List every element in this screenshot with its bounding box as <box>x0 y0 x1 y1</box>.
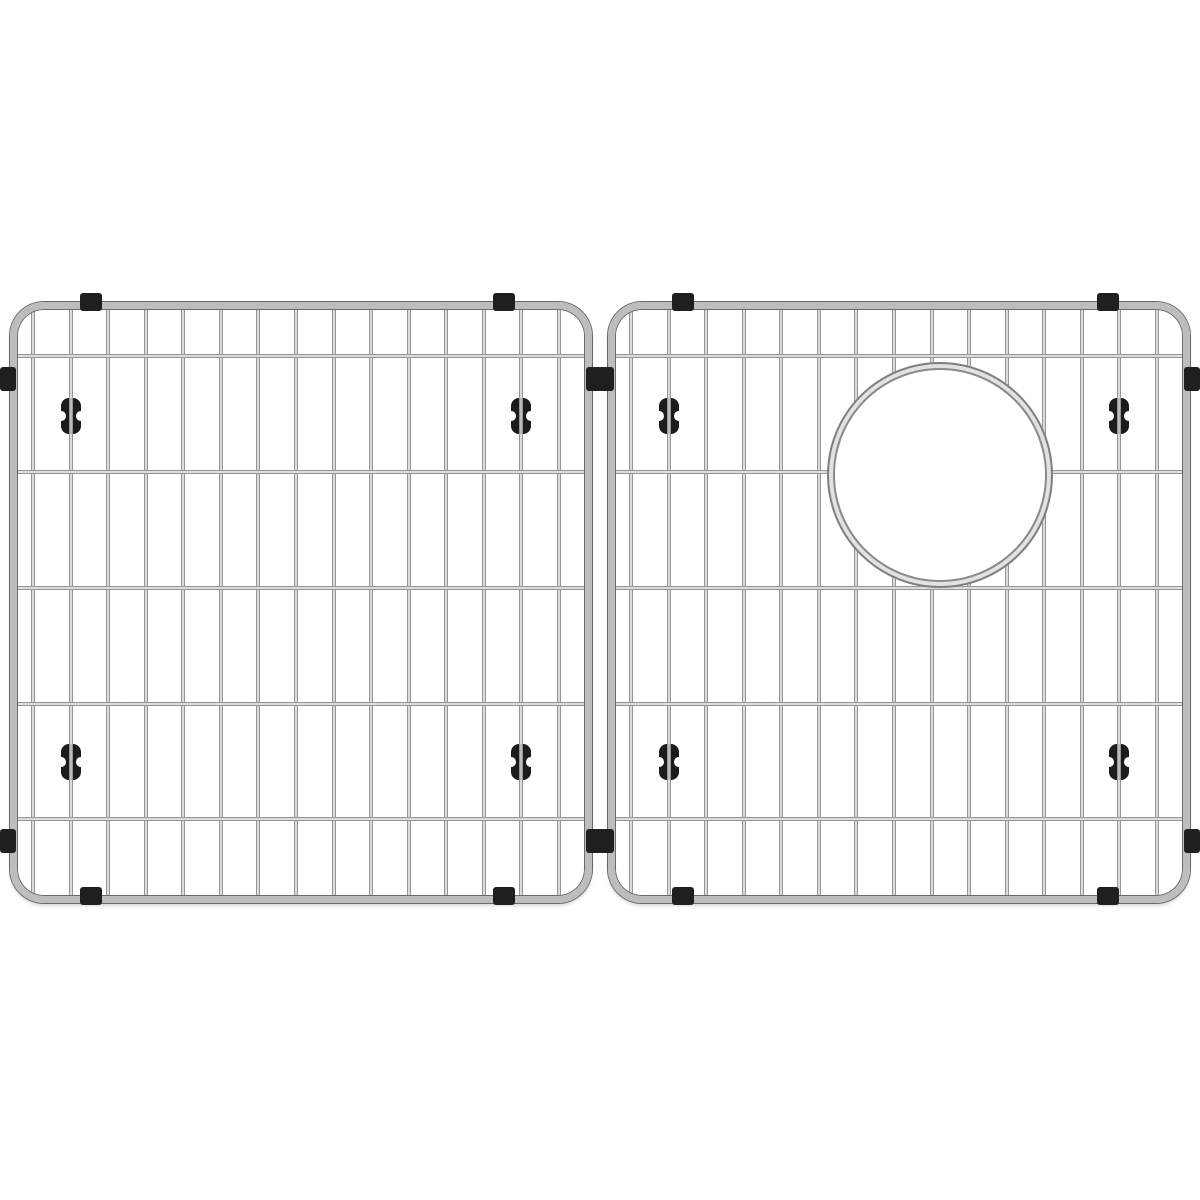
rubber-foot <box>1109 398 1129 434</box>
foot-notch-right <box>674 757 683 767</box>
side-bumper-right <box>1184 367 1200 391</box>
rubber-foot <box>1109 744 1129 780</box>
mounting-clip-top <box>493 293 515 311</box>
mounting-clip-bottom <box>493 887 515 905</box>
side-bumper-left <box>0 367 16 391</box>
foot-notch-left <box>655 411 664 421</box>
wire-through-foot <box>519 398 523 434</box>
grid-frame <box>10 302 592 903</box>
grid-frame <box>608 302 1190 903</box>
mounting-clip-top <box>672 293 694 311</box>
wire-through-foot <box>667 398 671 434</box>
rubber-foot <box>61 398 81 434</box>
mounting-clip-top <box>80 293 102 311</box>
mounting-clip-bottom <box>1097 887 1119 905</box>
foot-notch-left <box>57 411 66 421</box>
rubber-foot <box>511 744 531 780</box>
wire-through-foot <box>519 744 523 780</box>
side-bumper-left <box>598 367 614 391</box>
foot-notch-right <box>76 411 85 421</box>
rubber-foot <box>511 398 531 434</box>
wire-through-foot <box>1117 744 1121 780</box>
foot-notch-left <box>655 757 664 767</box>
side-bumper-left <box>0 829 16 853</box>
product-photo-canvas <box>0 0 1200 1200</box>
mounting-clip-bottom <box>80 887 102 905</box>
mounting-clip-top <box>1097 293 1119 311</box>
wire-through-foot <box>667 744 671 780</box>
rubber-foot <box>659 398 679 434</box>
wire-through-foot <box>69 398 73 434</box>
foot-notch-right <box>76 757 85 767</box>
mounting-clip-bottom <box>672 887 694 905</box>
side-bumper-left <box>598 829 614 853</box>
wire-through-foot <box>69 744 73 780</box>
rubber-foot <box>61 744 81 780</box>
foot-notch-right <box>674 411 683 421</box>
right-sink-grid <box>608 302 1190 903</box>
side-bumper-right <box>1184 829 1200 853</box>
rubber-foot <box>659 744 679 780</box>
foot-notch-left <box>57 757 66 767</box>
wire-through-foot <box>1117 398 1121 434</box>
left-sink-grid <box>10 302 592 903</box>
